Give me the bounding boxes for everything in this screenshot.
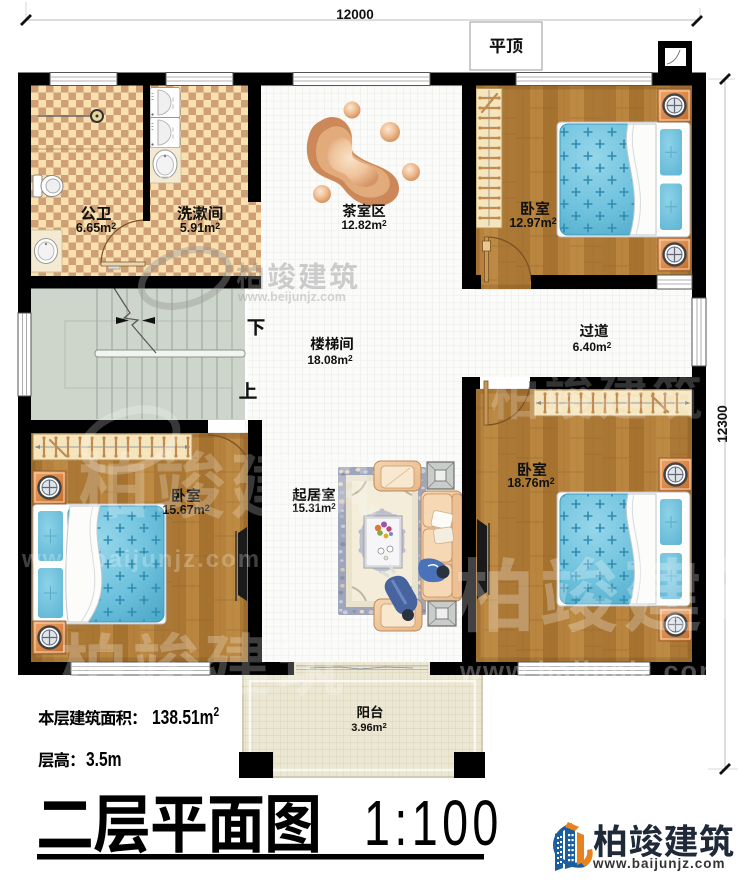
svg-text:6.40m2: 6.40m2 — [573, 340, 612, 354]
svg-text:1:100: 1:100 — [364, 787, 503, 859]
svg-text:18.76m2: 18.76m2 — [507, 476, 554, 490]
svg-text:138.51m2: 138.51m2 — [152, 705, 220, 729]
svg-text:5.91m2: 5.91m2 — [180, 221, 220, 235]
svg-text:www.baijunjz.com: www.baijunjz.com — [592, 856, 726, 871]
svg-text:6.65m2: 6.65m2 — [76, 221, 116, 235]
svg-text:12300: 12300 — [715, 405, 730, 443]
svg-text:12.97m2: 12.97m2 — [509, 216, 556, 230]
svg-text:12000: 12000 — [336, 7, 374, 22]
svg-text:18.08m2: 18.08m2 — [307, 353, 353, 367]
svg-text:12.82m2: 12.82m2 — [341, 218, 387, 232]
svg-text:3.5m: 3.5m — [86, 748, 122, 770]
svg-text:3.96m2: 3.96m2 — [351, 721, 386, 734]
svg-text:www.beijunjz.com: www.beijunjz.com — [237, 290, 346, 304]
svg-text:www.baijunjz.com: www.baijunjz.com — [459, 656, 725, 686]
svg-text:www.baijunjz.com: www.baijunjz.com — [21, 546, 261, 573]
